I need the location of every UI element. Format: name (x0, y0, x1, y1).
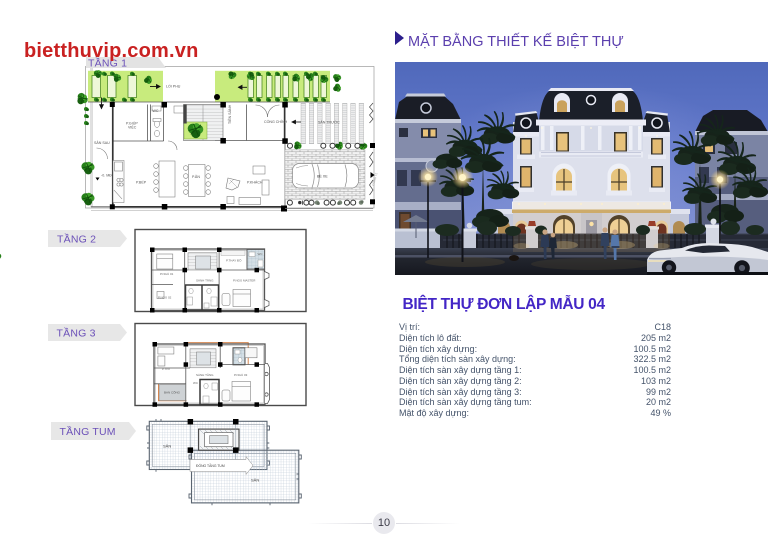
svg-text:SÂN: SÂN (251, 478, 259, 483)
svg-text:BAN CÔNG: BAN CÔNG (164, 390, 181, 395)
svg-text:P.NGỦ 03: P.NGỦ 03 (234, 372, 248, 377)
svg-text:P.ĂN: P.ĂN (192, 175, 200, 179)
svg-text:WC: WC (153, 109, 159, 113)
svg-text:P.THAY ĐỒ: P.THAY ĐỒ (226, 258, 242, 263)
svg-text:SÂN SAU: SÂN SAU (94, 141, 110, 145)
svg-text:LỐI PHỤ: LỐI PHỤ (166, 84, 181, 89)
svg-text:TẦNG TUM: TẦNG TUM (60, 425, 116, 438)
svg-text:TẦNG 3: TẦNG 3 (57, 327, 96, 340)
svg-text:SẢNH TẦNG: SẢNH TẦNG (196, 372, 214, 377)
svg-text:BỂ XE: BỂ XE (317, 174, 328, 179)
svg-text:VIỆC: VIỆC (128, 125, 137, 130)
svg-text:TIỀN SẢNH: TIỀN SẢNH (227, 104, 232, 124)
svg-text:CỔNG CHÍNH: CỔNG CHÍNH (264, 119, 288, 124)
svg-text:P.KHÁCH: P.KHÁCH (247, 181, 263, 185)
svg-text:WC: WC (258, 252, 264, 256)
svg-text:ĐÓNG TẦNG TUM: ĐÓNG TẦNG TUM (196, 463, 225, 468)
svg-text:P.NGỦ 01: P.NGỦ 01 (160, 271, 174, 276)
svg-text:SẢNH TẦNG: SẢNH TẦNG (196, 278, 214, 283)
svg-text:SÂN TRƯỚC: SÂN TRƯỚC (318, 120, 340, 125)
svg-text:P.NGỦ MASTER: P.NGỦ MASTER (233, 278, 256, 283)
svg-text:P.BẾP: P.BẾP (136, 180, 147, 185)
svg-text:TẦNG 2: TẦNG 2 (57, 233, 96, 246)
svg-text:P.TIVI: P.TIVI (162, 367, 170, 371)
svg-text:SÂN: SÂN (163, 444, 171, 449)
svg-text:-0. MĐ: -0. MĐ (101, 174, 112, 178)
svg-text:P.NGỦ 02: P.NGỦ 02 (158, 295, 172, 300)
svg-text:WC: WC (193, 381, 199, 385)
